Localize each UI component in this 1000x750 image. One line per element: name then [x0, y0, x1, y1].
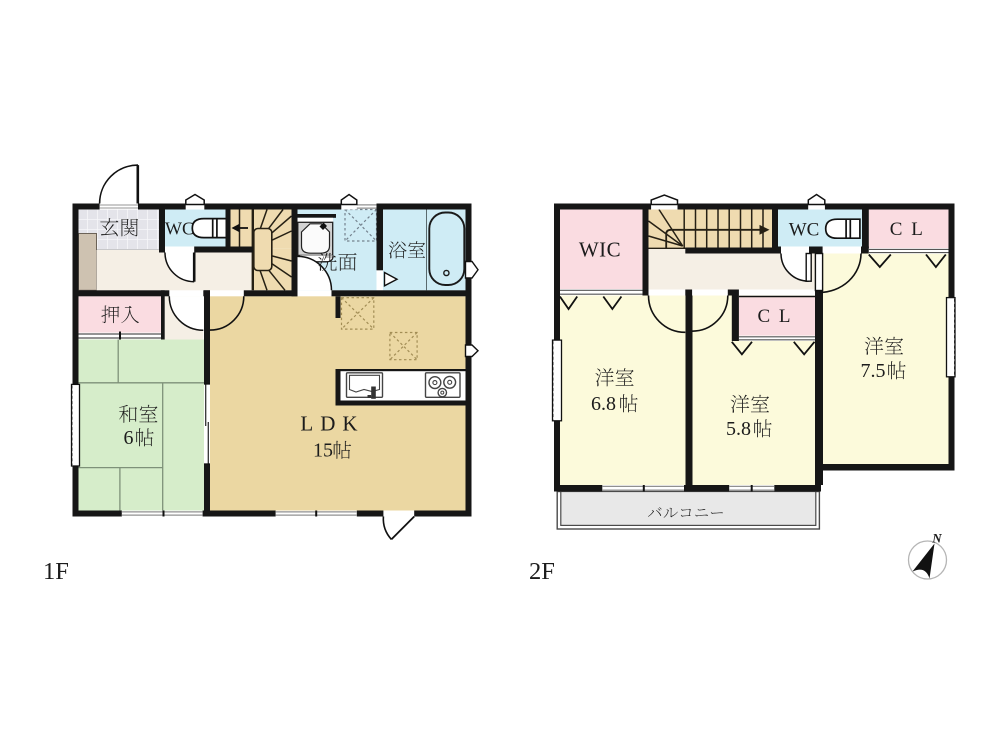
svg-text:15: 15	[313, 439, 333, 461]
svg-text:6: 6	[124, 427, 134, 449]
svg-text:WC: WC	[165, 219, 194, 239]
svg-text:WIC: WIC	[579, 237, 621, 261]
svg-text:1F: 1F	[43, 558, 69, 585]
svg-text:LDK: LDK	[300, 412, 364, 436]
svg-text:5.8: 5.8	[726, 418, 751, 440]
svg-text:N: N	[931, 530, 942, 545]
svg-text:C L: C L	[757, 306, 792, 327]
svg-text:6.8: 6.8	[591, 393, 616, 415]
svg-text:2F: 2F	[529, 558, 555, 585]
svg-text:C L: C L	[890, 219, 925, 240]
svg-text:WC: WC	[789, 219, 820, 240]
svg-text:7.5: 7.5	[861, 360, 886, 382]
